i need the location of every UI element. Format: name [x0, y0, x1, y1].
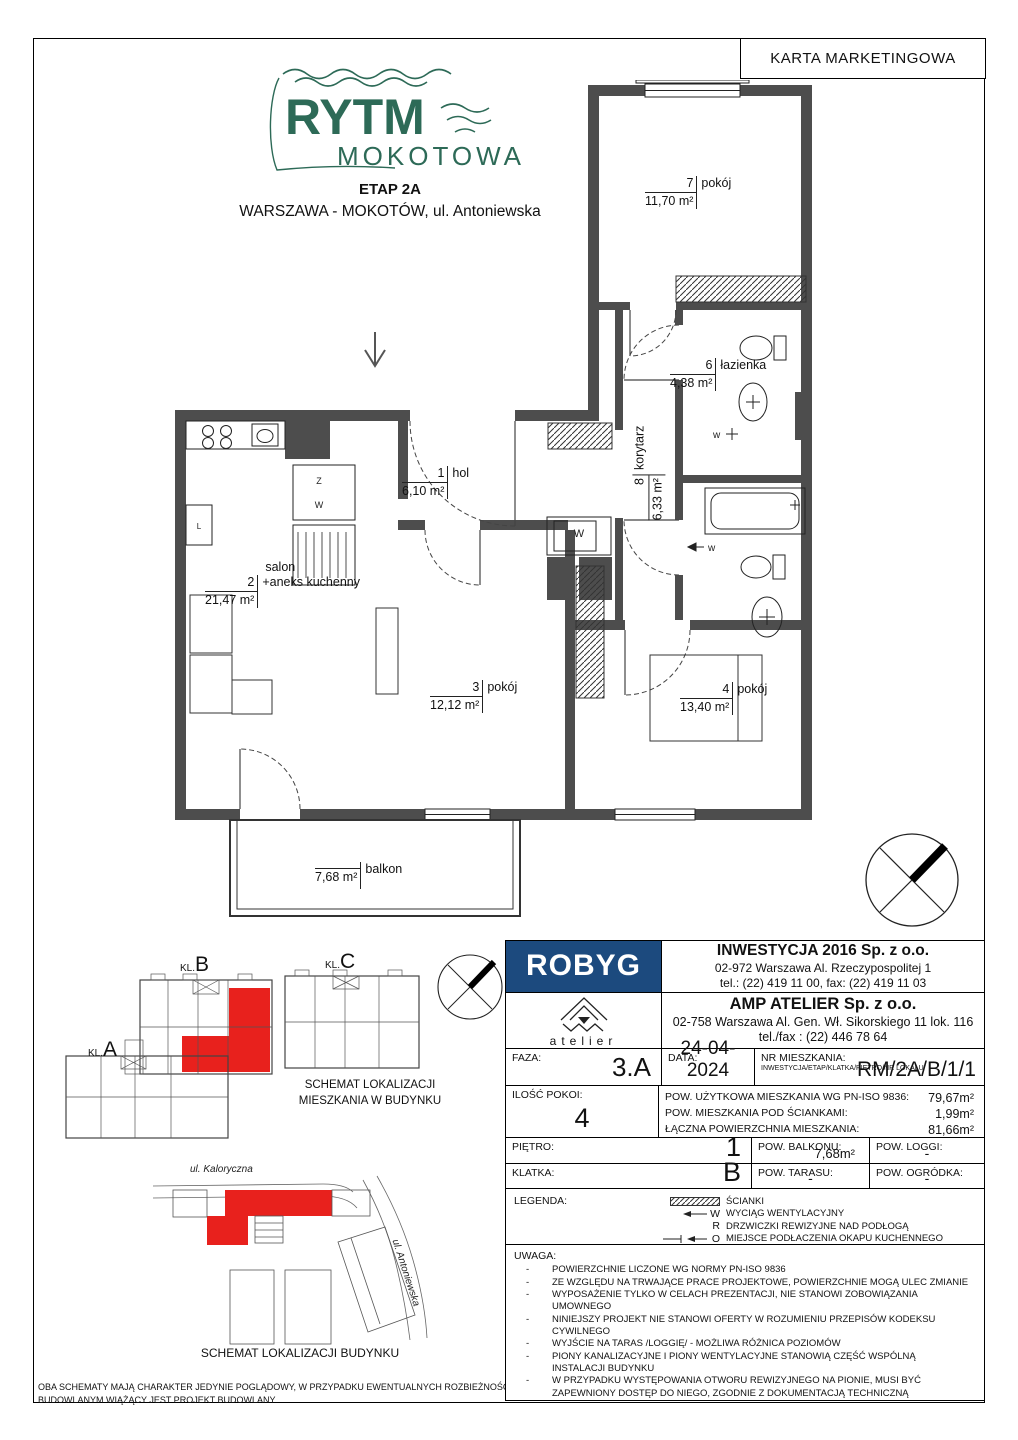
pietro-cell: PIĘTRO: 1 [506, 1138, 751, 1163]
room-area: 12,12 m² [430, 697, 482, 713]
vent-w-label-bath6: w [712, 430, 721, 441]
sideboard-icon [376, 608, 398, 694]
pow-loggi-value: - [870, 1145, 984, 1161]
developer-name: INWESTYCJA 2016 Sp. z o.o. [717, 942, 929, 960]
stove-icon [203, 426, 232, 449]
site-plan [153, 1176, 427, 1344]
room-label-8: 8 korytarz 6,33 m² [632, 423, 665, 521]
caption-schemat-mieszkania: SCHEMAT LOKALIZACJI MIESZKANIA W BUDYNKU [250, 1078, 490, 1109]
room-label-3: 3 pokój 12,12 m² [430, 680, 520, 713]
location-schematics [33, 940, 508, 1400]
pow-loggi-cell: POW. LOGGI: - [869, 1138, 984, 1163]
atelier-logo: atelier [506, 993, 661, 1048]
klatka-value: B [723, 1157, 741, 1188]
kl-c-label: KL.C [325, 950, 355, 974]
karta-marketingowa-box: KARTA MARKETINGOWA [740, 38, 986, 79]
room-prefix: salon [257, 560, 363, 575]
room-area: 13,40 m² [680, 699, 732, 715]
room-no: 3 [430, 680, 482, 697]
robyg-logo: ROBYG [506, 941, 661, 992]
kitchen-sink-icon [252, 424, 278, 446]
balkon-label: balkon 7,68 m² [315, 862, 405, 889]
data-value: 24-04-2024 [662, 1038, 754, 1082]
uwaga-item: ZE WZGLĘDU NA TRWAJĄCE PRACE PROJEKTOWE,… [514, 1277, 976, 1289]
pow-tarasu-value: - [752, 1170, 869, 1186]
highlighted-apartment [182, 988, 270, 1072]
ilosc-pokoi-value: 4 [506, 1103, 658, 1134]
room-name: łazienka [715, 358, 769, 391]
uwaga-section: UWAGA: POWIERZCHNIE LICZONE WG NORMY PN-… [506, 1244, 984, 1400]
compass-small-icon [438, 955, 502, 1019]
legend-item-scianki: ŚCIANKI [602, 1195, 984, 1208]
nr-mieszkania-value: RM/2A/B/1/1 [857, 1058, 976, 1082]
room-area: 6,33 m² [649, 475, 665, 520]
marketing-card-page: { "page": {"karta_title": "KARTA MARKETI… [0, 0, 1018, 1440]
pow-ogrodka-cell: POW. OGRÓDKA: - [869, 1164, 984, 1188]
nr-mieszkania-cell: NR MIESZKANIA: INWESTYCJA/ETAP/KLATKA/PI… [754, 1049, 984, 1085]
pow-laczna-value: 81,66m² [928, 1123, 974, 1137]
room-no: 1 [402, 466, 447, 483]
architect-address: 02-758 Warszawa Al. Gen. Wł. Sikorskiego… [673, 1015, 974, 1031]
building-c [285, 970, 419, 1068]
room-name: +aneks kuchenny [257, 575, 363, 592]
uwaga-item: NINIEJSZY PROJEKT NIE STANOWI OFERTY W R… [514, 1314, 976, 1339]
legend-item-wyciag: W WYCIĄG WENTYLACYJNY [602, 1208, 984, 1221]
room-name: korytarz [632, 423, 665, 475]
room-area: 4,38 m² [670, 375, 715, 391]
hood-connection-icon [663, 1234, 709, 1244]
toilet-icon [740, 336, 786, 360]
vent-w-label-bath5: w [707, 543, 716, 554]
pow-ogrodka-value: - [870, 1170, 984, 1186]
bathtub-icon [705, 488, 805, 534]
room-label-2: salon 2 +aneks kuchenny 21,47 m² [205, 560, 363, 608]
vent-arrow-icon [688, 543, 704, 551]
pow-balkonu-cell: POW. BALKONU: 7,68m² [751, 1138, 869, 1163]
wall-hatch-icon [670, 1197, 720, 1206]
room-area: 6,10 m² [402, 483, 447, 499]
entrance-arrow-icon [365, 332, 385, 366]
info-table: ROBYG INWESTYCJA 2016 Sp. z o.o. 02-972 … [505, 940, 985, 1401]
pow-scianki-value: 1,99m² [935, 1107, 974, 1121]
karta-title: KARTA MARKETINGOWA [770, 50, 955, 67]
legend-section: LEGENDA: ŚCIANKI [506, 1188, 984, 1244]
developer-address: 02-972 Warszawa Al. Rzeczypospolitej 1 [715, 961, 931, 976]
room-label-1: 1 hol 6,10 m² [402, 466, 472, 499]
faza-cell: FAZA: 3.A [506, 1049, 661, 1085]
kl-b-label: KL.B [180, 953, 209, 977]
caption-schemat-budynku: SCHEMAT LOKALIZACJI BUDYNKU [150, 1345, 450, 1361]
pow-balkonu-value: 7,68m² [815, 1146, 855, 1161]
bathroom5-fixtures [688, 488, 805, 637]
atelier-mark-icon [555, 993, 613, 1033]
kitchen-z-label: Z [316, 476, 322, 486]
street-kaloryczna-label: ul. Kaloryczna [190, 1164, 253, 1175]
kl-a-label: KL.A [88, 1038, 117, 1062]
room-name: pokój [482, 680, 520, 713]
room-label-6: 6 łazienka 4,38 m² [670, 358, 769, 391]
developer-info: INWESTYCJA 2016 Sp. z o.o. 02-972 Warsza… [661, 941, 984, 992]
uwaga-item: POWIERZCHNIE LICZONE WG NORMY PN-ISO 983… [514, 1264, 976, 1276]
kitchen-w-label: W [315, 500, 324, 510]
room-name: balkon [360, 862, 405, 889]
room-no: 6 [670, 358, 715, 375]
compass-icon [860, 828, 964, 932]
kitchen-counter-icon [186, 421, 285, 449]
uwaga-item: PIONY KANALIZACYJNE I PIONY WENTYLACYJNE… [514, 1351, 976, 1376]
room-no: 8 [632, 475, 649, 520]
room-name: pokój [732, 682, 770, 715]
room-area: 7,68 m² [315, 869, 360, 890]
kitchen-cabinet-icon [293, 465, 355, 520]
vent-arrow-icon [681, 1210, 707, 1218]
room-label-7: 7 pokój 11,70 m² [645, 176, 734, 209]
uwaga-item: W PRZYPADKU WYSTĘPOWANIA OTWORU REWIZYJN… [514, 1375, 976, 1400]
developer-phone: tel.: (22) 419 11 00, fax: (22) 419 11 0… [720, 976, 926, 991]
atelier-word: atelier [550, 1034, 618, 1048]
building-b [125, 974, 272, 1074]
faza-value: 3.A [612, 1052, 651, 1083]
sink-icon [752, 597, 782, 637]
room-no: 2 [205, 575, 257, 592]
architect-phone: tel./fax : (22) 446 78 64 [759, 1030, 888, 1046]
architect-name: AMP ATELIER Sp. z o.o. [730, 995, 917, 1014]
room-label-4: 4 pokój 13,40 m² [680, 682, 770, 715]
l-box-label: L [197, 522, 202, 531]
pow-uzytkowa-value: 79,67m² [928, 1091, 974, 1105]
room-area: 11,70 m² [645, 193, 696, 209]
uwaga-item: WYJŚCIE NA TARAS /LOGGIĘ/ - MOŻLIWA RÓŻN… [514, 1338, 976, 1350]
room-name: hol [447, 466, 472, 499]
klatka-cell: KLATKA: B [506, 1164, 751, 1188]
room-no: 7 [645, 176, 696, 193]
room-name: pokój [696, 176, 734, 209]
fridge-icon [285, 421, 330, 459]
legend-item-rewizja: R DRZWICZKI REWIZYJNE NAD PODŁOGĄ [602, 1220, 984, 1233]
ilosc-pokoi-cell: ILOŚĆ POKOI: 4 [506, 1086, 658, 1137]
data-cell: DATA: 24-04-2024 [661, 1049, 754, 1085]
toilet-icon [741, 555, 785, 579]
uwaga-item: WYPOSAŻENIE TYLKO W CELACH PREZENTACJI, … [514, 1289, 976, 1314]
washer-label: W [574, 528, 585, 540]
room-area: 21,47 m² [205, 592, 257, 608]
powierzchnie-cell: POW. UŻYTKOWA MIESZKANIA WG PN-ISO 9836:… [658, 1086, 984, 1137]
pow-tarasu-cell: POW. TARASU: - [751, 1164, 869, 1188]
room-no: 4 [680, 682, 732, 699]
